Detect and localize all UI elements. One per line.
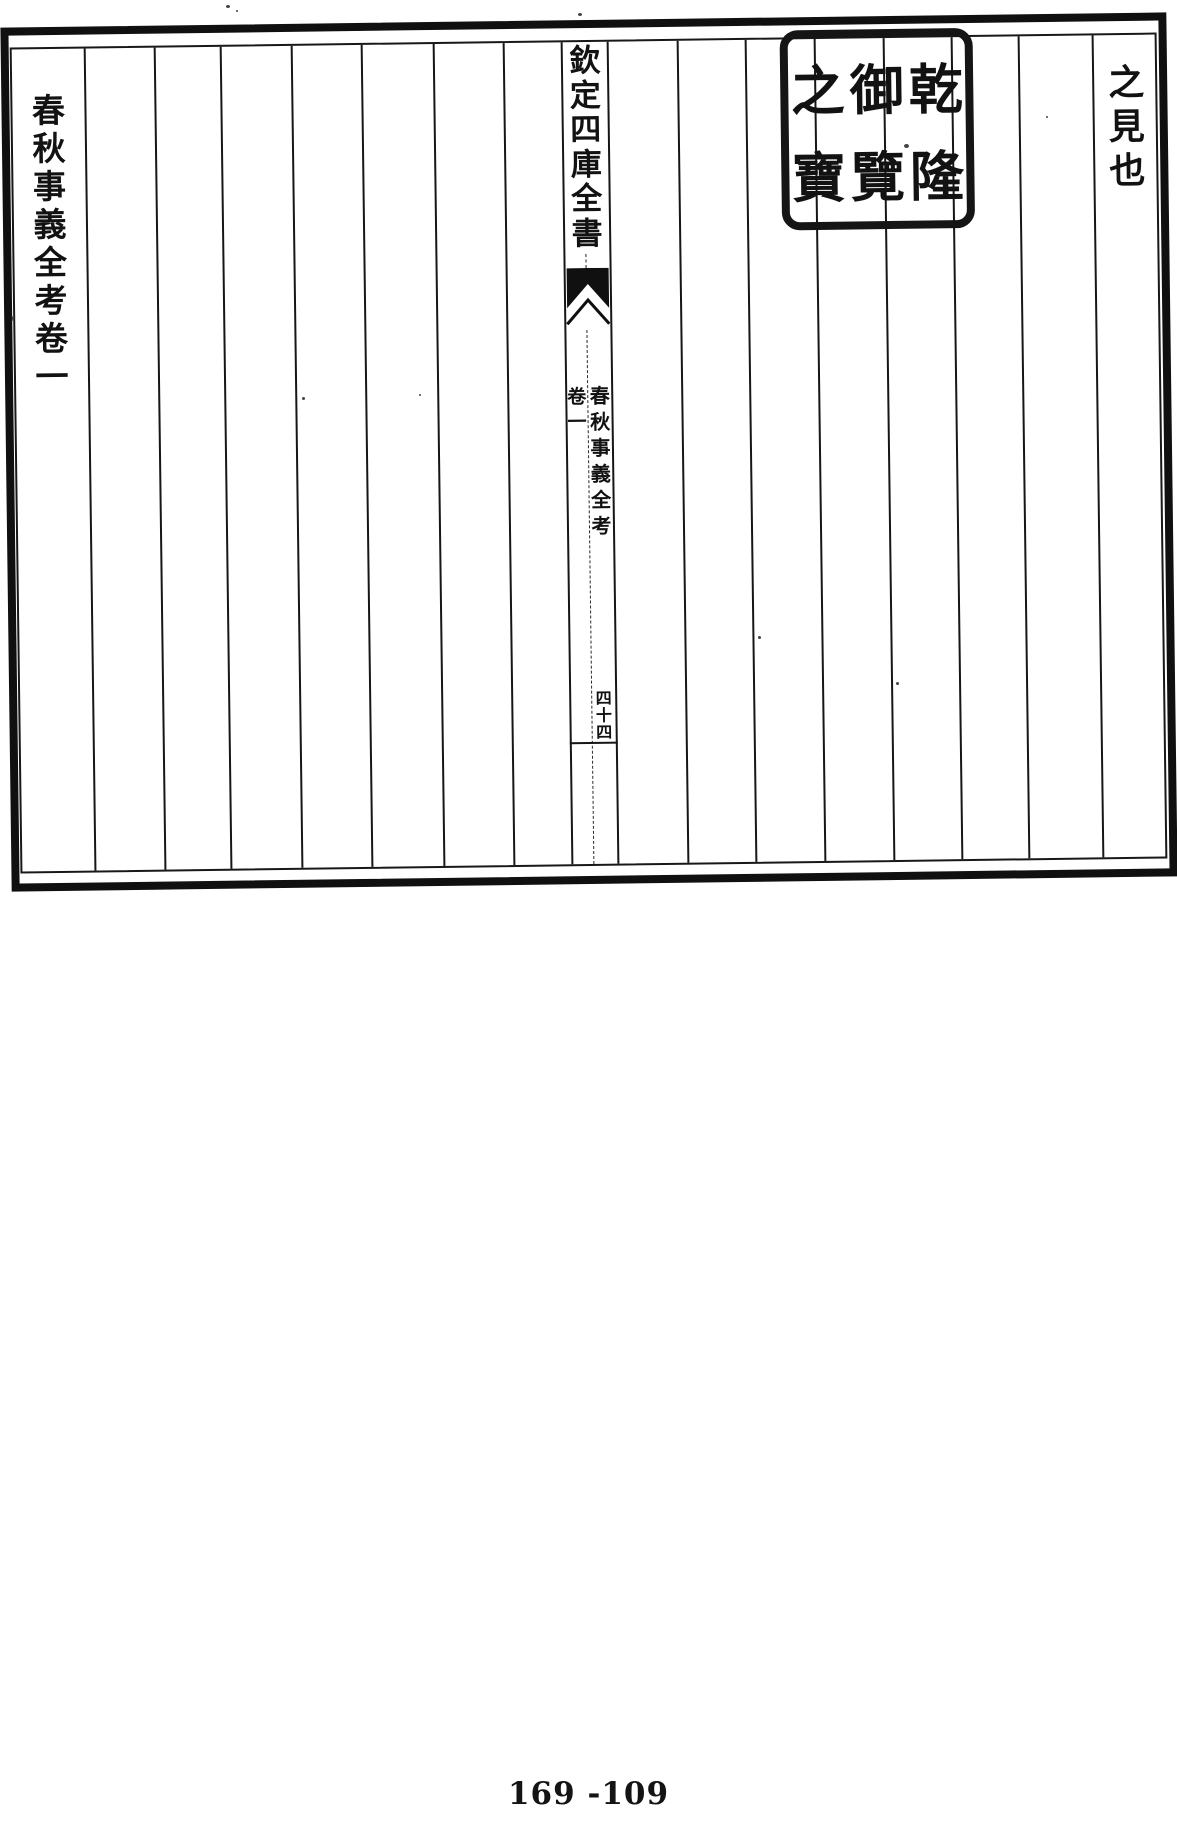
page-frame: 之見也 春秋事義全考卷一 欽定四庫全書 春秋事義全考 卷一 四十四 乾隆 御覽 … [0, 12, 1177, 891]
column-rule [154, 48, 167, 870]
column-rule [1092, 35, 1105, 857]
header-title: 欽定四庫全書 [563, 44, 610, 252]
left-column-volume-title: 春秋事義全考卷一 [25, 92, 75, 397]
column-rule [745, 40, 758, 862]
column-rule [677, 41, 690, 863]
imperial-seal: 乾隆 御覽 之寶 [779, 28, 975, 231]
scanned-document-page: { "document": { "frame": { "header_title… [0, 0, 1177, 1833]
column-rule [361, 45, 374, 867]
fishtail-marker-icon [566, 268, 611, 331]
right-column-text: 之見也 [1103, 61, 1151, 194]
column-rule [433, 44, 446, 866]
ink-speck [226, 5, 230, 8]
gutter-horizontal-rule [570, 742, 618, 745]
gutter-dash-rule [585, 254, 587, 268]
gutter-folio-number: 四十四 [592, 690, 616, 741]
ink-speck [1046, 116, 1048, 118]
column-rule [84, 49, 97, 871]
column-rule [1018, 36, 1031, 858]
column-rule [503, 43, 516, 865]
gutter-juan-label: 卷一 [566, 385, 588, 435]
ink-speck [302, 397, 305, 400]
ink-speck [11, 316, 13, 321]
ink-speck [236, 10, 238, 12]
ink-speck [758, 636, 761, 639]
seal-column-middle: 御覽 [847, 39, 908, 220]
ink-speck [578, 13, 582, 16]
seal-column-left: 之寶 [788, 40, 849, 221]
column-rule [291, 46, 304, 868]
column-rule [220, 47, 233, 869]
seal-column-right: 乾隆 [906, 38, 967, 219]
ink-speck [904, 144, 909, 148]
ink-speck [419, 394, 421, 396]
ink-speck [896, 682, 899, 685]
footer-page-number: 169 -109 [0, 1776, 1177, 1812]
gutter-book-title: 春秋事義全考 [588, 383, 613, 539]
